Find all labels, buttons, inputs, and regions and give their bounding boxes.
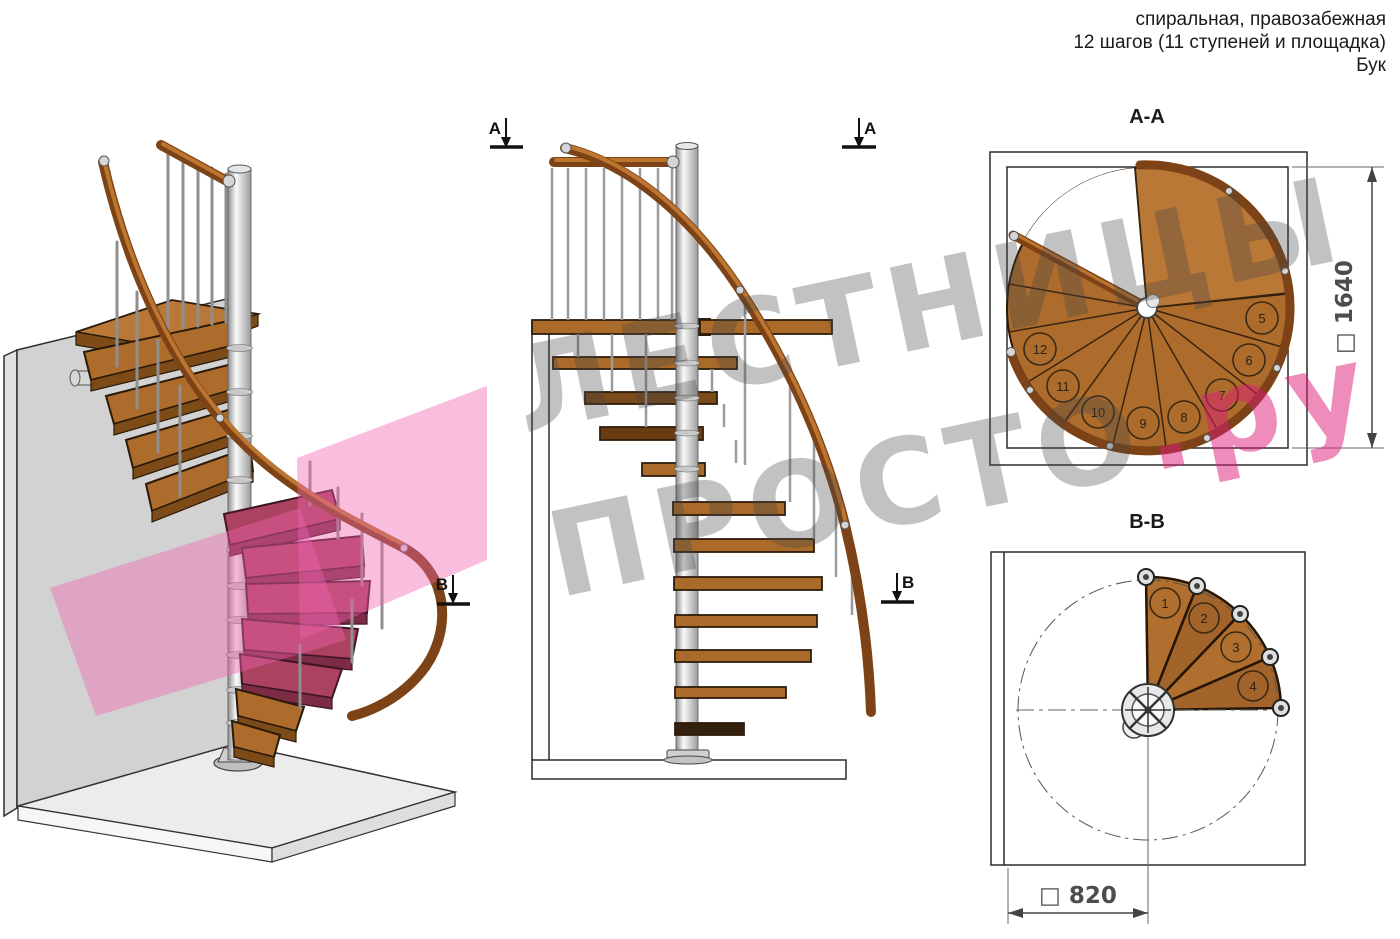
- column-cap: [228, 165, 251, 173]
- title-block: спиральная, правозабежная 12 шагов (11 с…: [1073, 8, 1386, 77]
- top-rail-cap: [667, 156, 679, 168]
- aa-step-label: 5: [1258, 311, 1265, 326]
- marker-b-label: В: [902, 573, 914, 592]
- page: А А В В А-А: [0, 0, 1400, 939]
- top-rail-cap: [223, 175, 235, 187]
- title-steps: 12 шагов (11 ступеней и площадка): [1073, 31, 1386, 54]
- tread: [675, 650, 811, 662]
- title-type: спиральная, правозабежная: [1073, 8, 1386, 31]
- bb-step-label: 3: [1232, 640, 1239, 655]
- tread: [675, 723, 744, 735]
- plan-bb-title: В-В: [1129, 511, 1165, 533]
- handrail-start-cap: [561, 143, 571, 153]
- center-hub: [1122, 684, 1174, 738]
- plan-aa-title: А-А: [1129, 106, 1165, 128]
- plan-bb-view: В-В 1: [991, 511, 1305, 924]
- dimension-820: □ 820: [1008, 868, 1148, 924]
- landing-sector: [1135, 168, 1286, 308]
- handrail-end-cap: [1007, 348, 1016, 357]
- tread: [674, 577, 822, 590]
- handrail-start-cap: [99, 156, 109, 166]
- drawing-canvas: А А В В А-А: [0, 0, 1400, 939]
- aa-step-label: 9: [1139, 416, 1146, 431]
- top-rail-highlight: [163, 144, 223, 177]
- section-plane-a: [297, 386, 487, 640]
- dim-1640-label: □ 1640: [1332, 260, 1358, 354]
- aa-step-label: 8: [1180, 410, 1187, 425]
- column-base-flange: [664, 756, 712, 764]
- handrail-end-cap: [1010, 232, 1019, 241]
- aa-step-label: 11: [1056, 379, 1070, 394]
- tread: [675, 615, 817, 627]
- handrail-joint: [736, 286, 744, 294]
- column-cap: [676, 143, 698, 150]
- handrail-joint: [216, 414, 224, 422]
- section-marker-a-left: А: [489, 118, 523, 148]
- aa-step-label: 6: [1245, 353, 1252, 368]
- plan-aa-view: А-А: [990, 106, 1384, 465]
- tread: [674, 539, 814, 552]
- section-marker-a-right: А: [842, 118, 876, 148]
- tread: [675, 687, 786, 698]
- tread: [673, 502, 785, 515]
- marker-a-label: А: [489, 119, 501, 138]
- handrail-joint: [841, 521, 849, 529]
- bb-step-label: 2: [1200, 611, 1207, 626]
- bb-step-label: 1: [1161, 596, 1168, 611]
- elevation-view: А А В В: [436, 118, 915, 779]
- center-pole-ball: [1147, 295, 1160, 308]
- aa-step-label: 12: [1033, 342, 1047, 357]
- platform-balusters: [552, 168, 672, 427]
- dim-820-label: □ 820: [1039, 883, 1117, 909]
- section-marker-b-right: В: [881, 573, 914, 602]
- isometric-view: [4, 144, 487, 862]
- bb-step-label: 4: [1249, 679, 1256, 694]
- title-material: Бук: [1073, 54, 1386, 77]
- marker-a-label: А: [864, 119, 876, 138]
- wall-side-face: [4, 350, 17, 816]
- marker-b-label: В: [436, 575, 448, 594]
- aa-step-label: 7: [1218, 388, 1225, 403]
- dimension-1640: □ 1640: [1292, 167, 1384, 448]
- aa-step-label: 10: [1091, 405, 1105, 420]
